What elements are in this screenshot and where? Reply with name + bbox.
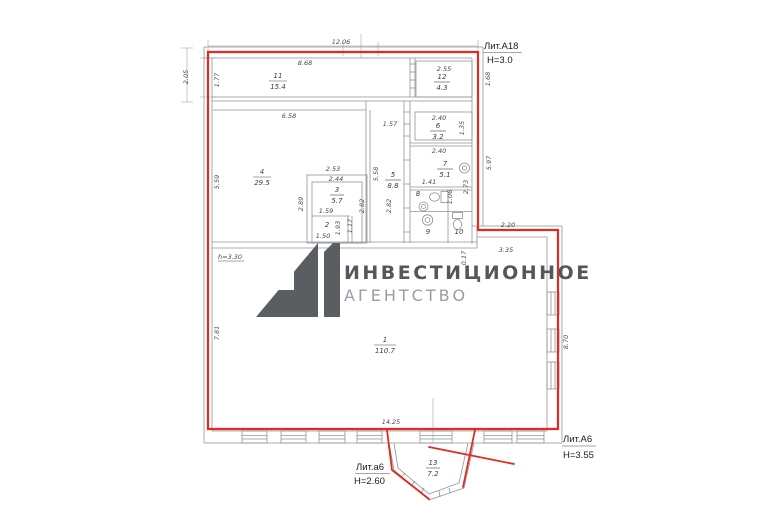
svg-text:Лит.а6: Лит.а6 [356, 462, 384, 473]
room-label-11: 1115.4 [269, 72, 287, 91]
svg-text:9: 9 [426, 228, 431, 236]
room-label-10: 10 [455, 228, 464, 236]
dimension-labels: 12.06 2.05 1.77 8.68 2.55 1.68 6.58 1.57… [182, 38, 570, 426]
room-label-1: 1110.7 [374, 336, 396, 355]
dim-label: 8.70 [562, 335, 570, 349]
svg-text:6: 6 [436, 122, 441, 130]
dim-label: 12.06 [332, 38, 351, 46]
lit-a6-label: Лит.А6 Н=3.55 [562, 434, 596, 461]
dim-label: 1.35 [458, 121, 466, 135]
svg-text:3: 3 [335, 186, 339, 194]
floor-plan-drawing: 12.06 2.05 1.77 8.68 2.55 1.68 6.58 1.57… [0, 0, 770, 510]
building-walls [204, 47, 562, 443]
agency-logo-icon [256, 243, 340, 317]
dim-label: 1.17 [346, 218, 354, 233]
svg-text:5.1: 5.1 [439, 171, 450, 179]
dim-label: 1.41 [422, 178, 436, 186]
dim-label: 2.40 [432, 114, 446, 122]
dim-label: 5.97 [485, 155, 493, 170]
svg-text:Н=3.55: Н=3.55 [563, 450, 594, 461]
svg-text:5.7: 5.7 [331, 197, 343, 205]
dim-label: 5.59 [213, 175, 221, 189]
svg-text:Н=3.0: Н=3.0 [487, 55, 513, 66]
dim-label: 2.55 [437, 65, 451, 73]
room-label-3: 35.7 [330, 186, 344, 205]
svg-text:Лит.А18: Лит.А18 [484, 41, 518, 52]
dim-label: 2.82 [358, 199, 366, 213]
sink-icon [422, 215, 432, 225]
svg-text:29.5: 29.5 [254, 179, 270, 187]
svg-text:7: 7 [443, 160, 448, 168]
dim-label: 8.68 [298, 59, 312, 67]
ceiling-height-note: h=3.30 [218, 253, 242, 261]
window-icon [281, 431, 306, 443]
dim-label: 2.20 [501, 221, 515, 229]
window-icon [242, 431, 267, 443]
svg-text:5: 5 [391, 171, 396, 179]
dim-label: 5.58 [372, 167, 380, 181]
window-icon [484, 431, 512, 443]
dim-label: 7.81 [213, 326, 221, 340]
dim-label: 2.73 [462, 180, 470, 194]
svg-text:110.7: 110.7 [375, 347, 396, 355]
watermark-line2: АГЕНТСТВО [344, 286, 468, 305]
dim-label: 1.57 [383, 120, 398, 128]
svg-text:7.2: 7.2 [427, 470, 439, 478]
watermark: ИНВЕСТИЦИОННОЕ АГЕНТСТВО [256, 243, 592, 317]
window-icon [420, 431, 452, 443]
svg-text:3.2: 3.2 [432, 133, 444, 141]
lit-a18-label: Лит.А18 Н=3.0 [483, 41, 522, 66]
svg-text:13: 13 [429, 459, 438, 467]
dim-label: 6.58 [282, 112, 296, 120]
room-label-5: 58.8 [385, 171, 401, 190]
dim-label: 2.89 [297, 197, 305, 211]
room-label-9: 9 [426, 228, 431, 236]
svg-text:1: 1 [383, 336, 387, 344]
svg-text:8: 8 [416, 190, 421, 198]
dim-label: 3.35 [499, 246, 513, 254]
room-label-8: 8 [416, 190, 421, 198]
watermark-line1: ИНВЕСТИЦИОННОЕ [344, 262, 592, 284]
dim-label: 2.05 [182, 70, 190, 84]
svg-text:4.3: 4.3 [436, 84, 447, 92]
room-label-7: 75.1 [437, 160, 453, 179]
dim-label: 1.68 [484, 72, 492, 86]
svg-text:2: 2 [325, 221, 330, 229]
dim-label: 1.93 [334, 221, 342, 235]
lit-a6-small-label: Лит.а6 Н=2.60 [354, 462, 390, 487]
svg-text:4: 4 [260, 168, 264, 176]
room-label-6: 63.2 [430, 122, 446, 141]
svg-text:15.4: 15.4 [270, 83, 286, 91]
svg-text:10: 10 [455, 228, 464, 236]
dim-label: 2.40 [432, 147, 446, 155]
dim-label: 14.25 [382, 418, 401, 426]
room-label-12: 124.3 [434, 73, 450, 92]
room-label-2: 2 [325, 221, 330, 229]
dim-label: 2.82 [385, 199, 393, 213]
room-label-13: 137.2 [426, 459, 440, 478]
sink-icon [419, 202, 428, 211]
window-icon [357, 431, 382, 443]
window-icon [517, 431, 544, 443]
window-icon [319, 431, 345, 443]
room-label-4: 429.5 [253, 168, 271, 187]
dim-label: 2.53 [326, 165, 340, 173]
dim-label: 2.44 [329, 175, 343, 183]
dim-label: 1.77 [213, 72, 221, 87]
svg-text:8.8: 8.8 [387, 182, 399, 190]
sink-icon [460, 163, 470, 173]
svg-text:Н=2.60: Н=2.60 [354, 476, 385, 487]
dim-label: 1.59 [319, 207, 333, 215]
toilet-icon [453, 213, 463, 230]
svg-text:Лит.А6: Лит.А6 [563, 434, 592, 445]
svg-text:12: 12 [438, 73, 447, 81]
floor-plan-page: 12.06 2.05 1.77 8.68 2.55 1.68 6.58 1.57… [0, 0, 770, 510]
dim-label: 1.06 [446, 190, 454, 204]
svg-text:11: 11 [274, 72, 283, 80]
dim-label: 1.50 [316, 232, 330, 240]
